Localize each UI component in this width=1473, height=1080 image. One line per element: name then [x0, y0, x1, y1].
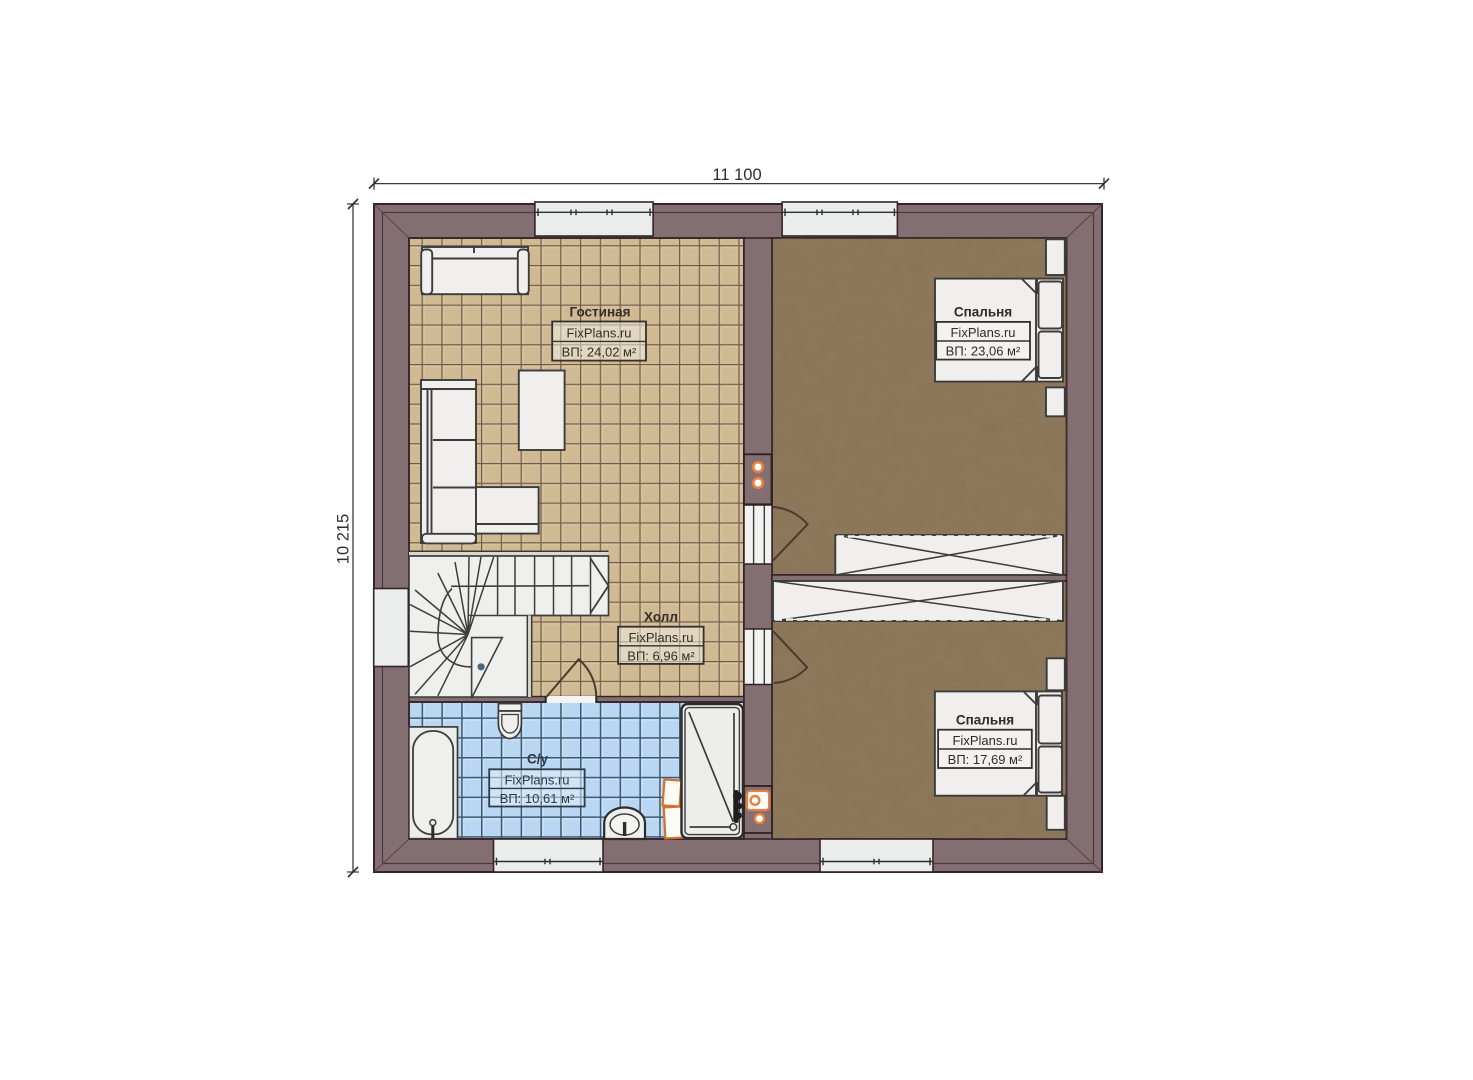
svg-text:ВП: 17,69 м²: ВП: 17,69 м² — [948, 752, 1023, 767]
svg-text:ВП: 23,06 м²: ВП: 23,06 м² — [946, 344, 1021, 359]
svg-text:FixPlans.ru: FixPlans.ru — [566, 326, 631, 341]
svg-text:FixPlans.ru: FixPlans.ru — [950, 325, 1015, 340]
svg-text:Спальня: Спальня — [956, 713, 1014, 728]
svg-text:Холл: Холл — [644, 610, 678, 625]
svg-text:Спальня: Спальня — [954, 305, 1012, 320]
svg-text:11 100: 11 100 — [712, 166, 761, 184]
svg-text:FixPlans.ru: FixPlans.ru — [504, 772, 569, 787]
svg-text:10 215: 10 215 — [335, 514, 353, 564]
svg-text:ВП: 6,96 м²: ВП: 6,96 м² — [627, 648, 695, 663]
svg-text:Гостиная: Гостиная — [569, 305, 630, 320]
svg-text:С/у: С/у — [527, 752, 549, 767]
svg-text:ВП: 24,02 м²: ВП: 24,02 м² — [562, 345, 637, 360]
svg-text:FixPlans.ru: FixPlans.ru — [952, 733, 1017, 748]
svg-text:FixPlans.ru: FixPlans.ru — [628, 630, 693, 645]
svg-text:ВП: 10,61 м²: ВП: 10,61 м² — [500, 791, 575, 806]
